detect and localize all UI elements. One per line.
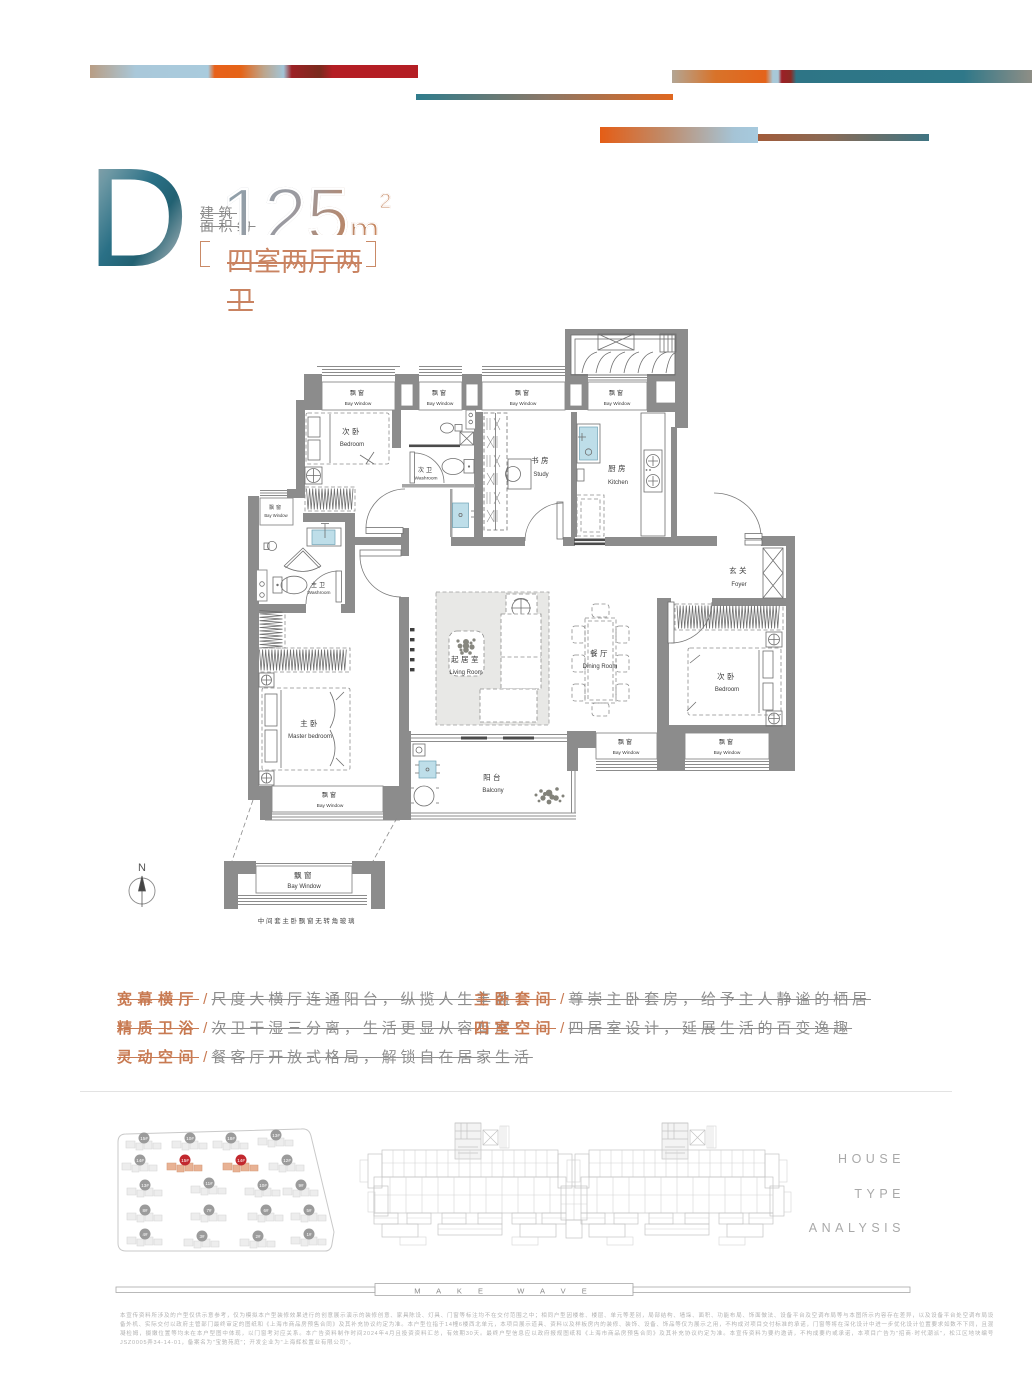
svg-text:8#: 8# xyxy=(142,1208,148,1213)
svg-text:1#: 1# xyxy=(306,1232,312,1237)
svg-text:飘窗: 飘窗 xyxy=(719,738,735,746)
svg-text:9#: 9# xyxy=(298,1183,304,1188)
svg-text:起居室: 起居室 xyxy=(451,654,481,664)
svg-text:N: N xyxy=(138,862,146,874)
svg-text:飘窗: 飘窗 xyxy=(294,870,314,880)
svg-text:13#: 13# xyxy=(141,1183,149,1188)
svg-text:2#: 2# xyxy=(255,1234,261,1239)
svg-text:飘窗: 飘窗 xyxy=(515,389,531,397)
svg-text:18#: 18# xyxy=(227,1136,235,1141)
svg-text:4#: 4# xyxy=(142,1232,148,1237)
svg-text:5#: 5# xyxy=(306,1208,312,1213)
svg-text:13#: 13# xyxy=(272,1133,280,1138)
svg-text:飘窗: 飘窗 xyxy=(432,389,448,397)
svg-text:Living Room: Living Room xyxy=(449,670,482,676)
svg-text:Kitchen: Kitchen xyxy=(608,480,628,486)
svg-text:Bay Window: Bay Window xyxy=(510,401,537,407)
svg-text:餐厅: 餐厅 xyxy=(590,649,610,658)
svg-text:11#: 11# xyxy=(205,1181,213,1186)
svg-text:Washroom: Washroom xyxy=(307,590,330,596)
svg-text:飘窗: 飘窗 xyxy=(269,504,283,511)
svg-text:次卫: 次卫 xyxy=(418,466,434,474)
svg-text:14#: 14# xyxy=(237,1158,245,1163)
svg-text:书房: 书房 xyxy=(531,455,551,465)
svg-text:主卧: 主卧 xyxy=(300,718,320,728)
svg-text:Bedroom: Bedroom xyxy=(715,687,739,693)
svg-text:次卧: 次卧 xyxy=(342,426,362,436)
svg-text:Foyer: Foyer xyxy=(731,582,746,588)
svg-text:阳台: 阳台 xyxy=(483,772,503,782)
svg-text:飘窗: 飘窗 xyxy=(350,389,366,397)
svg-text:12#: 12# xyxy=(283,1158,291,1163)
svg-text:15#: 15# xyxy=(140,1136,148,1141)
svg-text:M A K E W A V E: M A K E W A V E xyxy=(414,1287,593,1296)
svg-text:Bay Window: Bay Window xyxy=(317,803,344,809)
svg-text:主卫: 主卫 xyxy=(311,581,327,589)
svg-text:7#: 7# xyxy=(206,1208,212,1213)
svg-text:6#: 6# xyxy=(263,1208,269,1213)
svg-text:Balcony: Balcony xyxy=(482,788,503,794)
svg-text:10#: 10# xyxy=(259,1183,267,1188)
svg-text:Bay Window: Bay Window xyxy=(613,750,640,756)
svg-text:Bedroom: Bedroom xyxy=(340,442,364,448)
svg-text:3#: 3# xyxy=(199,1234,205,1239)
svg-text:15#: 15# xyxy=(181,1158,189,1163)
svg-text:Bay Window: Bay Window xyxy=(345,401,372,407)
svg-text:Bay Window: Bay Window xyxy=(427,401,454,407)
svg-text:飘窗: 飘窗 xyxy=(618,738,634,746)
svg-text:Dining Room: Dining Room xyxy=(583,664,618,670)
svg-text:Master bedroom: Master bedroom xyxy=(288,734,332,740)
svg-text:Bay Window: Bay Window xyxy=(714,750,741,756)
svg-text:中间套主卧飘窗无转角玻璃: 中间套主卧飘窗无转角玻璃 xyxy=(258,916,356,925)
svg-text:玄关: 玄关 xyxy=(729,565,749,575)
svg-text:厨房: 厨房 xyxy=(608,463,628,473)
svg-text:14#: 14# xyxy=(136,1158,144,1163)
svg-text:飘窗: 飘窗 xyxy=(322,791,338,799)
svg-text:10#: 10# xyxy=(186,1136,194,1141)
svg-text:次卧: 次卧 xyxy=(717,671,737,681)
svg-text:Study: Study xyxy=(533,472,548,478)
svg-text:Bay Window: Bay Window xyxy=(287,884,321,890)
svg-text:Washroom: Washroom xyxy=(414,476,437,482)
svg-text:Bay Window: Bay Window xyxy=(604,401,631,407)
svg-text:Bay Window: Bay Window xyxy=(264,513,288,518)
svg-text:飘窗: 飘窗 xyxy=(609,389,625,397)
